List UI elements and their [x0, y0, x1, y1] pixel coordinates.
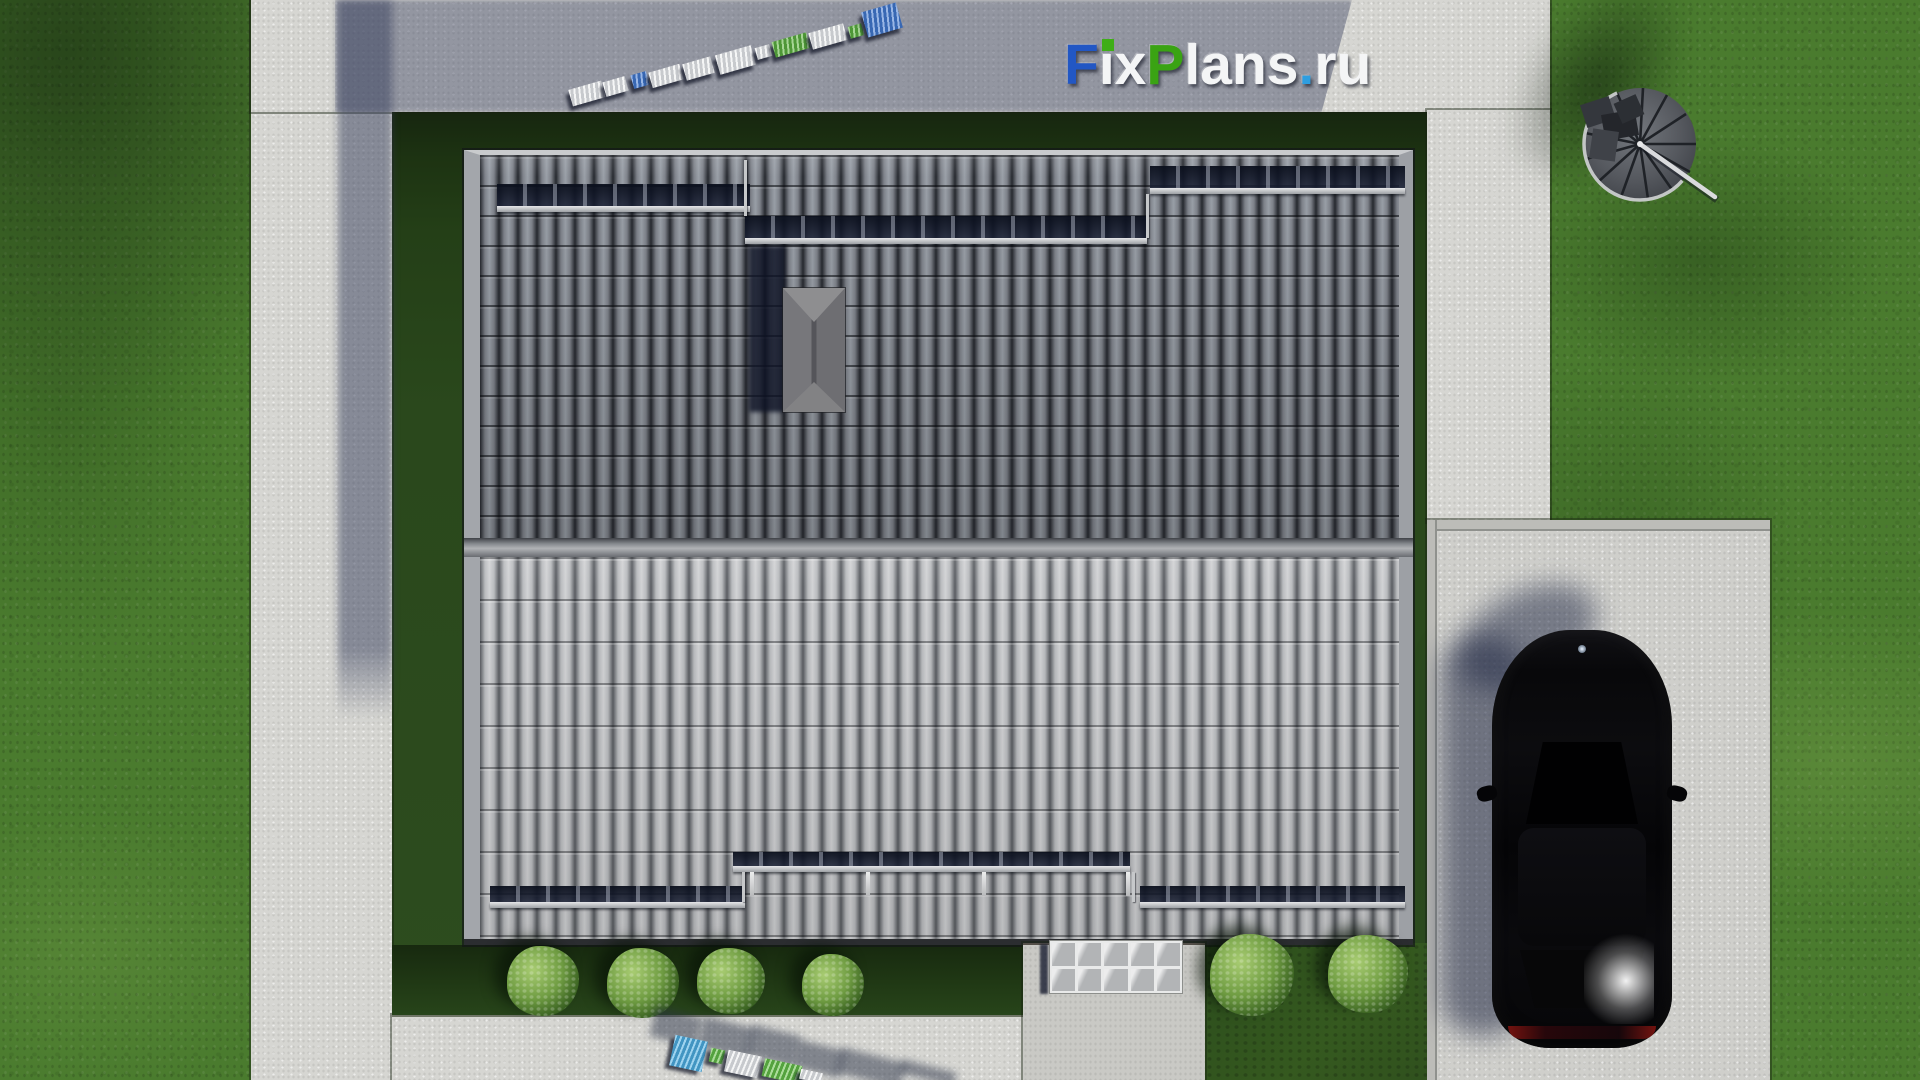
- snow-guard-band-bottom-middle: [733, 852, 1130, 866]
- bush: [607, 948, 679, 1018]
- house-roof: [464, 150, 1413, 945]
- roof-ridge: [464, 538, 1413, 557]
- snow-guard-connector: [1132, 872, 1135, 902]
- snow-guard-rail-top-right: [1150, 188, 1405, 194]
- bush: [507, 946, 579, 1016]
- snow-guard-band-top-middle: [745, 216, 1147, 238]
- watermark-letter: .: [1298, 32, 1314, 98]
- snow-guard-connector: [1146, 194, 1149, 238]
- gutter-rod: [750, 872, 754, 896]
- canopy-glass-panel: [1078, 943, 1101, 966]
- gutter-rod: [1126, 872, 1130, 896]
- snow-guard-band-bottom-left: [490, 886, 745, 902]
- car-reflection: [1584, 928, 1654, 1024]
- roof-slope-upper: [480, 155, 1399, 538]
- entrance-canopy: [1050, 941, 1182, 993]
- bush: [802, 954, 864, 1016]
- car-windshield: [1512, 742, 1652, 824]
- watermark-letter: ı: [1099, 32, 1115, 98]
- bush: [697, 948, 765, 1014]
- house-shadow-left: [338, 0, 392, 720]
- watermark-letter: r: [1314, 32, 1336, 98]
- snow-guard-rail-top-middle: [745, 238, 1147, 244]
- canopy-glass-panel: [1131, 969, 1154, 992]
- watermark-letter: n: [1232, 32, 1267, 98]
- car: [1492, 630, 1672, 1048]
- snow-guard-band-bottom-right: [1140, 886, 1405, 902]
- watermark-letter-dot: [1102, 39, 1114, 51]
- snow-guard-rail-bottom-left: [490, 902, 745, 908]
- snow-guard-connector: [742, 872, 745, 902]
- canopy-glass-panel: [1131, 943, 1154, 966]
- watermark-letter: l: [1184, 32, 1200, 98]
- canopy-glass-panel: [1104, 943, 1127, 966]
- scene: FıxPlans.ru: [0, 0, 1920, 1080]
- snow-guard-band-top-right: [1150, 166, 1405, 188]
- logo3d-bottom-block: [709, 1048, 726, 1065]
- chimney-shadow: [749, 246, 785, 412]
- car-emblem: [1578, 645, 1586, 653]
- snow-guard-connector: [744, 160, 747, 216]
- canopy-glass-panel: [1157, 943, 1180, 966]
- snow-guard-rail-bottom-middle: [733, 866, 1130, 872]
- canopy-glass-panel: [1104, 969, 1127, 992]
- watermark-letter: u: [1337, 32, 1372, 98]
- watermark-letter: s: [1267, 32, 1299, 98]
- bush: [1328, 935, 1408, 1013]
- snow-guard-band-top-left: [497, 184, 750, 206]
- canopy-glass-panel: [1052, 969, 1075, 992]
- walkway-right: [1427, 110, 1550, 522]
- logo3d-bottom-block: [669, 1035, 708, 1072]
- snow-guard-rail-bottom-right: [1140, 902, 1405, 908]
- chimney: [783, 288, 845, 412]
- canopy-glass-panel: [1157, 969, 1180, 992]
- gutter-rod: [982, 872, 986, 896]
- canopy-glass-panel: [1052, 943, 1075, 966]
- watermark-letter: x: [1115, 32, 1147, 98]
- fixplans-watermark: FıxPlans.ru: [1064, 32, 1371, 98]
- car-taillights: [1508, 1026, 1656, 1039]
- snow-guard-rail-top-left: [497, 206, 750, 212]
- canopy-post-shadow: [1040, 944, 1048, 994]
- gutter-rod: [866, 872, 870, 896]
- watermark-letter: a: [1200, 32, 1232, 98]
- roof-slope-lower: [480, 557, 1399, 939]
- watermark-letter: F: [1064, 32, 1099, 98]
- satellite-dish-icon: [1555, 78, 1725, 218]
- bush: [1210, 934, 1294, 1016]
- watermark-letter: P: [1146, 32, 1184, 98]
- canopy-glass-panel: [1078, 969, 1101, 992]
